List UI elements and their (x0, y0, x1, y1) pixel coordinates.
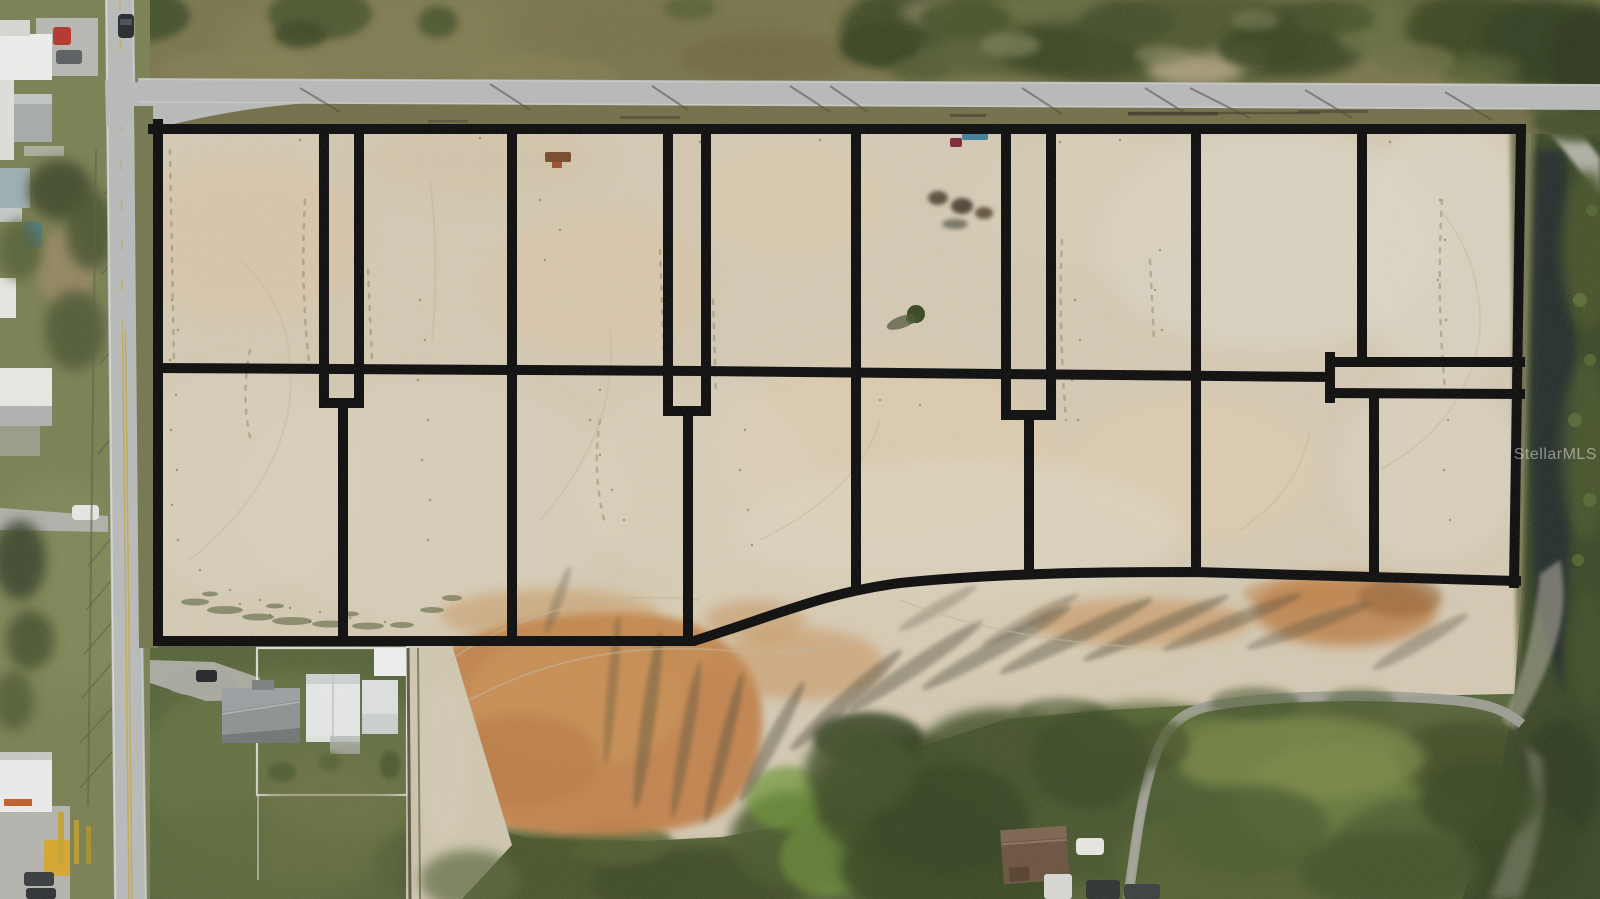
svg-text:StellarMLS: StellarMLS (1514, 446, 1597, 463)
